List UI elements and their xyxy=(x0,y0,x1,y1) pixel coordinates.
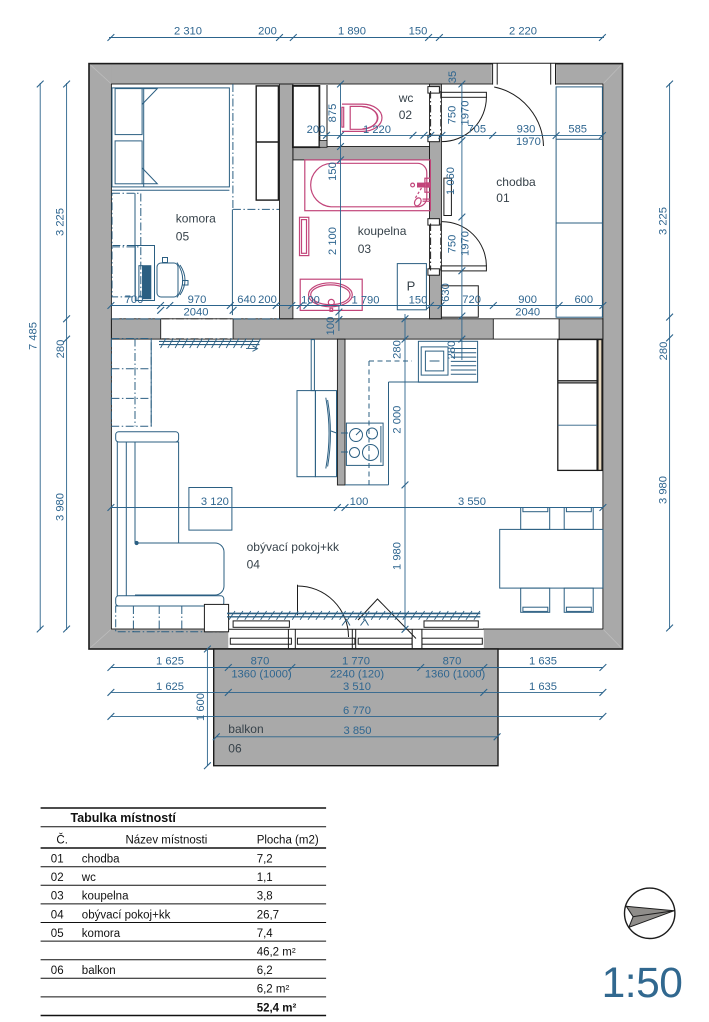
svg-text:1 600: 1 600 xyxy=(195,693,207,721)
svg-text:komora: komora xyxy=(82,928,121,940)
svg-text:280: 280 xyxy=(658,342,670,361)
svg-text:720: 720 xyxy=(462,294,481,306)
svg-text:26,7: 26,7 xyxy=(257,909,279,921)
svg-text:wc: wc xyxy=(398,91,414,105)
svg-text:1 220: 1 220 xyxy=(363,124,391,136)
svg-text:970: 970 xyxy=(188,294,207,306)
svg-text:Plocha (m2): Plocha (m2) xyxy=(257,835,319,847)
svg-text:2 310: 2 310 xyxy=(174,26,202,38)
svg-text:1970: 1970 xyxy=(516,136,541,148)
svg-text:Tabulka místností: Tabulka místností xyxy=(71,811,177,825)
svg-text:2 220: 2 220 xyxy=(509,26,537,38)
svg-text:750: 750 xyxy=(447,235,459,254)
svg-text:640: 640 xyxy=(237,294,256,306)
svg-text:04: 04 xyxy=(51,909,64,921)
svg-text:875: 875 xyxy=(327,104,339,123)
svg-text:2 100: 2 100 xyxy=(327,227,339,255)
svg-text:6,2 m²: 6,2 m² xyxy=(257,984,290,996)
svg-text:balkon: balkon xyxy=(82,965,116,977)
svg-text:3 980: 3 980 xyxy=(55,493,67,521)
svg-text:1 635: 1 635 xyxy=(529,656,557,668)
svg-text:obývací pokoj+kk: obývací pokoj+kk xyxy=(82,909,171,921)
svg-text:3 225: 3 225 xyxy=(658,207,670,235)
svg-text:05: 05 xyxy=(51,928,64,940)
svg-text:koupelna: koupelna xyxy=(358,224,407,238)
svg-text:150: 150 xyxy=(409,295,428,307)
svg-text:900: 900 xyxy=(518,294,537,306)
svg-text:1:50: 1:50 xyxy=(602,960,683,1007)
svg-text:100: 100 xyxy=(325,317,337,336)
svg-text:02: 02 xyxy=(51,872,64,884)
svg-text:100: 100 xyxy=(301,295,320,307)
svg-text:Název místnosti: Název místnosti xyxy=(125,835,207,847)
svg-text:600: 600 xyxy=(574,294,593,306)
svg-text:705: 705 xyxy=(467,124,486,136)
svg-text:1,1: 1,1 xyxy=(257,872,273,884)
svg-text:930: 930 xyxy=(517,124,536,136)
svg-text:630: 630 xyxy=(440,283,452,302)
svg-text:585: 585 xyxy=(568,124,587,136)
svg-text:200: 200 xyxy=(258,294,277,306)
svg-text:P: P xyxy=(407,279,416,294)
svg-text:100: 100 xyxy=(350,496,369,508)
svg-text:01: 01 xyxy=(496,191,510,205)
svg-text:2240 (120): 2240 (120) xyxy=(330,669,384,681)
svg-text:3 550: 3 550 xyxy=(458,496,486,508)
svg-text:200: 200 xyxy=(307,124,326,136)
svg-text:2 000: 2 000 xyxy=(392,406,404,434)
svg-text:200: 200 xyxy=(258,26,277,38)
svg-text:1 770: 1 770 xyxy=(342,656,370,668)
svg-text:06: 06 xyxy=(51,965,64,977)
svg-text:1 060: 1 060 xyxy=(445,167,457,195)
svg-text:1 625: 1 625 xyxy=(156,656,184,668)
svg-text:150: 150 xyxy=(409,26,428,38)
svg-text:6,2: 6,2 xyxy=(257,965,273,977)
svg-text:3 980: 3 980 xyxy=(658,476,670,504)
svg-text:komora: komora xyxy=(176,212,216,226)
svg-text:wc: wc xyxy=(81,872,96,884)
svg-text:1 980: 1 980 xyxy=(392,542,404,570)
svg-text:02: 02 xyxy=(399,108,413,122)
svg-text:03: 03 xyxy=(51,891,64,903)
svg-text:870: 870 xyxy=(251,656,270,668)
svg-text:1970: 1970 xyxy=(459,231,471,256)
svg-text:1360 (1000): 1360 (1000) xyxy=(231,669,292,681)
svg-text:3 225: 3 225 xyxy=(55,208,67,236)
svg-text:280: 280 xyxy=(446,341,458,360)
svg-text:2040: 2040 xyxy=(515,307,540,319)
svg-text:03: 03 xyxy=(358,242,372,256)
svg-text:1 890: 1 890 xyxy=(338,26,366,38)
svg-text:3,8: 3,8 xyxy=(257,891,273,903)
svg-text:52,4 m²: 52,4 m² xyxy=(257,1002,297,1014)
svg-text:280: 280 xyxy=(55,340,67,359)
svg-text:6 770: 6 770 xyxy=(343,705,371,717)
svg-text:1360 (1000): 1360 (1000) xyxy=(425,669,486,681)
svg-text:1970: 1970 xyxy=(459,101,471,126)
svg-text:46,2 m²: 46,2 m² xyxy=(257,947,296,959)
svg-text:150: 150 xyxy=(327,162,339,181)
svg-text:koupelna: koupelna xyxy=(82,891,129,903)
svg-text:1 625: 1 625 xyxy=(156,681,184,693)
svg-text:01: 01 xyxy=(51,854,64,866)
svg-text:2040: 2040 xyxy=(184,307,209,319)
svg-text:obývací pokoj+kk: obývací pokoj+kk xyxy=(247,540,340,554)
svg-text:750: 750 xyxy=(447,106,459,125)
svg-text:06: 06 xyxy=(228,742,242,756)
svg-text:7 485: 7 485 xyxy=(28,322,40,350)
svg-text:280: 280 xyxy=(392,340,404,359)
svg-text:3 510: 3 510 xyxy=(343,681,371,693)
svg-text:3 120: 3 120 xyxy=(201,496,229,508)
svg-text:700: 700 xyxy=(125,294,144,306)
svg-text:35: 35 xyxy=(447,71,459,83)
svg-text:chodba: chodba xyxy=(82,854,120,866)
svg-text:7,2: 7,2 xyxy=(257,854,273,866)
svg-text:870: 870 xyxy=(443,656,462,668)
svg-text:04: 04 xyxy=(247,558,261,572)
svg-text:Č.: Č. xyxy=(56,834,68,847)
svg-text:05: 05 xyxy=(176,230,190,244)
svg-text:chodba: chodba xyxy=(496,175,536,189)
svg-text:3 850: 3 850 xyxy=(344,725,372,737)
svg-text:1 635: 1 635 xyxy=(529,681,557,693)
svg-text:7,4: 7,4 xyxy=(257,928,274,940)
svg-text:1 790: 1 790 xyxy=(352,295,380,307)
svg-text:balkon: balkon xyxy=(228,722,263,736)
